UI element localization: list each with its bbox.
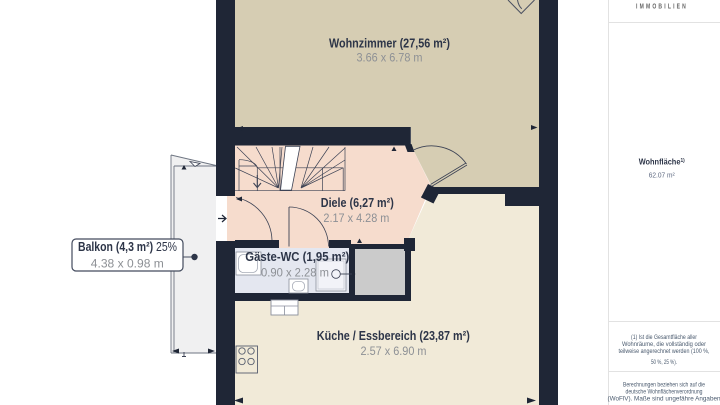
svg-text:3.66 x 6.78 m: 3.66 x 6.78 m [357, 51, 423, 65]
svg-text:2.17 x 4.28 m: 2.17 x 4.28 m [323, 211, 389, 225]
svg-text:(WoFlV). Maße sind ungefähre A: (WoFlV). Maße sind ungefähre Angaben [608, 396, 720, 403]
svg-text:2.57 x 6.90 m: 2.57 x 6.90 m [361, 344, 427, 358]
svg-text:IMMOBILIEN: IMMOBILIEN [636, 4, 688, 11]
svg-text:Wohnräume, die vollständig ode: Wohnräume, die vollständig oder [622, 341, 707, 348]
svg-text:62.07 m²: 62.07 m² [649, 171, 675, 180]
svg-text:Diele (6,27 m²): Diele (6,27 m²) [321, 196, 394, 210]
svg-text:Wohnfläche1): Wohnfläche1) [639, 157, 685, 167]
svg-text:deutsche Wohnflächenverordnung: deutsche Wohnflächenverordnung [626, 389, 703, 396]
svg-text:Gäste-WC (1,95 m²): Gäste-WC (1,95 m²) [245, 250, 349, 264]
svg-text:(1) Ist die Gesamtfläche aller: (1) Ist die Gesamtfläche aller [631, 334, 698, 341]
svg-text:4.38 x 0.98 m: 4.38 x 0.98 m [91, 257, 164, 271]
svg-text:teilweise angerechnet werden (: teilweise angerechnet werden (100 %, [619, 348, 710, 355]
svg-text:0.90 x 2.28 m: 0.90 x 2.28 m [261, 266, 329, 280]
svg-text:Balkon (4,3 m²) 25%: Balkon (4,3 m²) 25% [78, 240, 177, 254]
svg-text:Berechnungen beziehen sich auf: Berechnungen beziehen sich auf die [623, 382, 705, 389]
svg-text:50 %, 25 %).: 50 %, 25 %). [651, 359, 677, 366]
svg-text:Küche / Essbereich (23,87 m²): Küche / Essbereich (23,87 m²) [317, 329, 470, 343]
svg-text:Wohnzimmer (27,56 m²): Wohnzimmer (27,56 m²) [329, 37, 450, 51]
